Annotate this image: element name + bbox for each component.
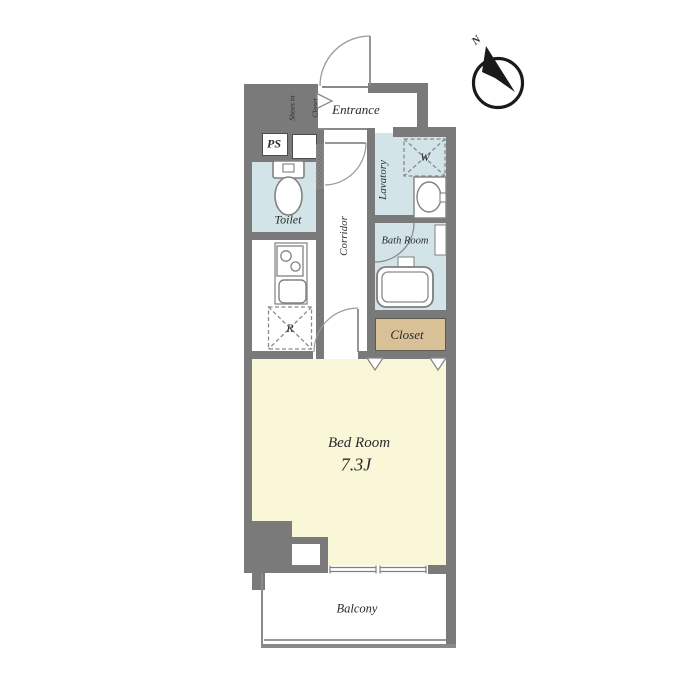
stove [277,246,303,276]
bathtub-inner [382,272,428,302]
washer-space-label: W [420,152,430,164]
toilet-label: Toilet [275,214,302,227]
bedroom-door-arc [314,308,358,352]
bath-step [398,257,414,267]
burner-icon [291,262,300,271]
closet-label: Closet [390,328,423,342]
closet-door-mark [430,358,446,370]
lavatory-label: Lavatory [378,160,390,200]
balcony-window [330,566,426,574]
washbasin-tap [440,193,446,202]
entrance-label: Entrance [332,103,380,117]
closet-door-mark [367,358,383,370]
toilet-bowl [275,177,302,215]
fridge-space-label: R [286,323,293,335]
entrance-door-arc [320,36,370,86]
bath-room-label: Bath Room [382,235,429,246]
ps-label: PS [267,138,281,151]
bedroom-size-label: 7.3J [341,456,372,475]
floor-plan: Entrance Shoes in Closet PS Toilet Corri… [0,0,696,691]
shoes-in-closet-label: Shoes in Closet [273,95,336,120]
balcony-label: Balcony [337,602,378,615]
burner-icon [281,251,291,261]
corridor-label: Corridor [339,216,351,256]
kitchen-sink [279,280,306,303]
bath-counter [435,225,446,255]
toilet-tank-lid [283,164,294,172]
corridor-door-arc [325,143,366,185]
washbasin-bowl [417,182,441,212]
bedroom-label: Bed Room [328,436,390,452]
toilet-sliding-door [317,145,324,188]
